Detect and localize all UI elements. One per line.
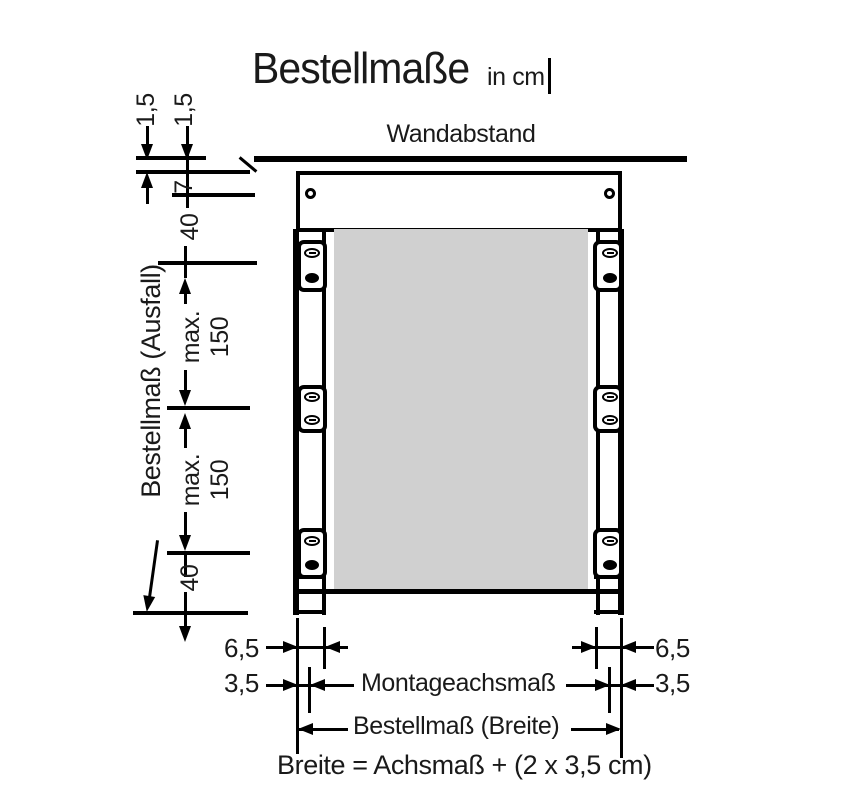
fabric-panel [334, 229, 588, 591]
mounting-axis-label: Montageachsmaß [361, 670, 556, 696]
rail-right-edge-lower [594, 610, 622, 614]
screw-hole-left [305, 188, 316, 199]
screw-head-icon [305, 273, 319, 283]
screw-slot-icon [304, 536, 320, 546]
dimension-line [184, 246, 187, 278]
dimension-line [566, 684, 654, 687]
dim-label-line: max. [177, 454, 206, 507]
dim-label-line: max. [177, 311, 206, 364]
dimension-line-diagonal [148, 540, 159, 598]
screw-head-icon [305, 560, 319, 570]
cassette-outline [296, 171, 622, 232]
arrowhead-down-icon [141, 144, 153, 160]
text-caret [548, 58, 551, 94]
order-width-label: Bestellmaß (Breite) [353, 713, 559, 739]
dim-label-1-5-b: 1,5 [171, 88, 197, 132]
axis-label-ausfall: Bestellmaß (Ausfall) [135, 256, 167, 506]
title-unit: in cm [487, 64, 545, 90]
screw-hole-right [604, 188, 615, 199]
width-formula: Breite = Achsmaß + (2 x 3,5 cm) [277, 751, 652, 779]
dim-label-max150-upper: max. 150 [177, 281, 235, 393]
screw-slot-icon [304, 415, 320, 425]
mounting-bracket [297, 528, 327, 579]
mounting-bracket [297, 240, 327, 292]
dim-label-line: 150 [206, 317, 235, 358]
arrowhead-down-icon [181, 144, 193, 160]
arrowhead-left-icon [325, 641, 340, 653]
technical-drawing: Bestellmaße in cm Wandabstand [0, 0, 860, 803]
dimension-line [146, 186, 149, 204]
screw-slot-icon [602, 248, 618, 258]
dim-label-6-5-left: 6,5 [224, 635, 259, 662]
mounting-bracket [593, 240, 623, 292]
arrowhead-down-icon [141, 595, 155, 613]
wall-line [254, 156, 687, 162]
extension-tick [158, 261, 257, 265]
dim-label-3-5-right: 3,5 [655, 670, 690, 697]
screw-head-icon [603, 273, 617, 283]
arrowhead-down-icon [179, 535, 191, 551]
screw-slot-icon [304, 392, 320, 402]
arrowhead-left-icon [298, 723, 313, 735]
arrowhead-right-icon [581, 641, 596, 653]
dim-label-6-5-right: 6,5 [655, 635, 690, 662]
rail-left-edge-lower [296, 610, 326, 614]
mounting-bracket [593, 385, 623, 433]
arrowhead-right-icon [606, 723, 621, 735]
arrowhead-down-icon [179, 626, 191, 642]
dim-label-line: 150 [206, 460, 235, 501]
bottom-bar-line [293, 589, 624, 594]
screw-slot-icon [602, 392, 618, 402]
screw-slot-icon [602, 536, 618, 546]
arrowhead-right-icon [283, 641, 298, 653]
arrowhead-right-icon [595, 679, 610, 691]
extension-tick [167, 406, 250, 410]
screw-head-icon [603, 560, 617, 570]
wall-distance-label: Wandabstand [380, 121, 542, 147]
dim-label-40-top: 40 [177, 204, 203, 250]
dim-label-1-5-a: 1,5 [133, 88, 159, 132]
mounting-bracket [593, 528, 623, 579]
screw-slot-icon [602, 415, 618, 425]
arrowhead-left-icon [621, 679, 636, 691]
arrowhead-up-icon [141, 172, 153, 188]
page-title: Bestellmaße [252, 46, 469, 92]
dim-label-max150-lower: max. 150 [177, 424, 235, 536]
arrowhead-left-icon [621, 641, 636, 653]
mounting-bracket [297, 385, 327, 433]
dim-label-7: 7 [171, 172, 197, 202]
arrowhead-left-icon [310, 679, 325, 691]
screw-slot-icon [304, 248, 320, 258]
arrowhead-right-icon [283, 679, 298, 691]
dim-label-40-bottom: 40 [177, 555, 203, 601]
dim-label-3-5-left: 3,5 [224, 670, 259, 697]
